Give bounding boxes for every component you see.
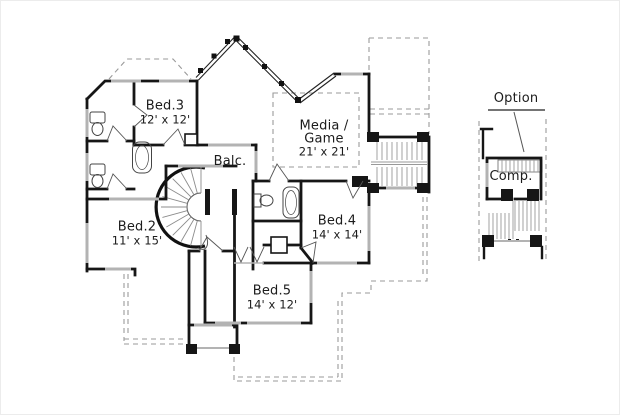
option-callout-line	[488, 110, 545, 152]
option-annotation-label: Option	[494, 93, 539, 106]
bed3-name: Bed.3	[140, 101, 191, 114]
bed5-dims: 14' x 12'	[247, 298, 298, 311]
bed4-dims: 14' x 14'	[312, 228, 363, 241]
floorplan-page: Bed.3 12' x 12' Media / Game 21' x 21' B…	[0, 0, 620, 415]
room-label-bed5: Bed.5 14' x 12'	[247, 286, 298, 311]
balcony-name: Balc.	[214, 156, 247, 169]
room-label-balcony: Balc.	[214, 156, 247, 169]
bay-window-mullions	[196, 36, 336, 104]
bed4-name: Bed.4	[312, 216, 363, 229]
room-label-media-game: Media / Game 21' x 21'	[299, 120, 350, 158]
spiral-staircase	[156, 167, 207, 249]
media-dims: 21' x 21'	[299, 145, 350, 158]
main-staircase	[371, 142, 427, 186]
bed5-name: Bed.5	[247, 286, 298, 299]
room-label-comp: Comp.	[489, 171, 532, 184]
option-label-text: Option	[494, 93, 539, 106]
room-label-bed4: Bed.4 14' x 14'	[312, 216, 363, 241]
roofline-dashed-lines	[109, 38, 546, 381]
room-label-bed3: Bed.3 12' x 12'	[140, 101, 191, 126]
bed3-dims: 12' x 12'	[140, 113, 191, 126]
floorplan-linework	[1, 1, 620, 415]
comp-name: Comp.	[489, 171, 532, 184]
bed2-name: Bed.2	[112, 222, 163, 235]
bed2-dims: 11' x 15'	[112, 234, 163, 247]
room-label-bed2: Bed.2 11' x 15'	[112, 222, 163, 247]
